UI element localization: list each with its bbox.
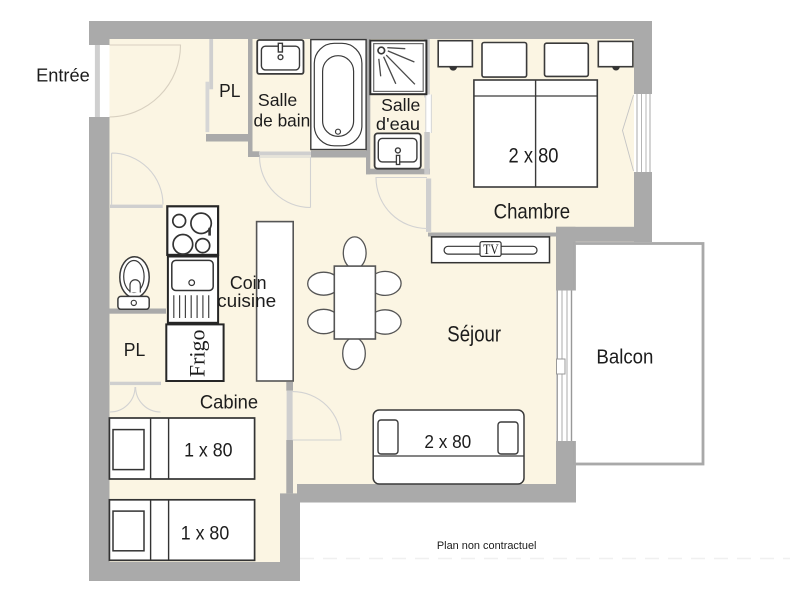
svg-text:2 x 80: 2 x 80	[424, 431, 471, 452]
svg-text:PL: PL	[219, 81, 240, 101]
svg-text:Chambre: Chambre	[494, 201, 571, 224]
svg-text:Salle: Salle	[381, 95, 420, 115]
svg-text:Cabine: Cabine	[200, 392, 258, 414]
svg-text:2 x 80: 2 x 80	[509, 145, 559, 168]
svg-text:Salle: Salle	[258, 90, 298, 110]
svg-text:Plan non contractuel: Plan non contractuel	[437, 540, 537, 552]
svg-text:1 x 80: 1 x 80	[184, 440, 233, 462]
svg-text:Frigo: Frigo	[184, 329, 209, 377]
svg-text:PL: PL	[124, 340, 146, 360]
svg-text:d'eau: d'eau	[376, 114, 420, 134]
svg-text:Balcon: Balcon	[596, 346, 653, 368]
svg-text:Entrée: Entrée	[36, 65, 90, 86]
svg-text:de bain: de bain	[254, 111, 311, 131]
svg-text:cuisine: cuisine	[217, 290, 276, 311]
svg-text:Séjour: Séjour	[447, 322, 501, 347]
svg-text:1 x 80: 1 x 80	[181, 523, 230, 545]
svg-text:TV: TV	[483, 242, 499, 258]
